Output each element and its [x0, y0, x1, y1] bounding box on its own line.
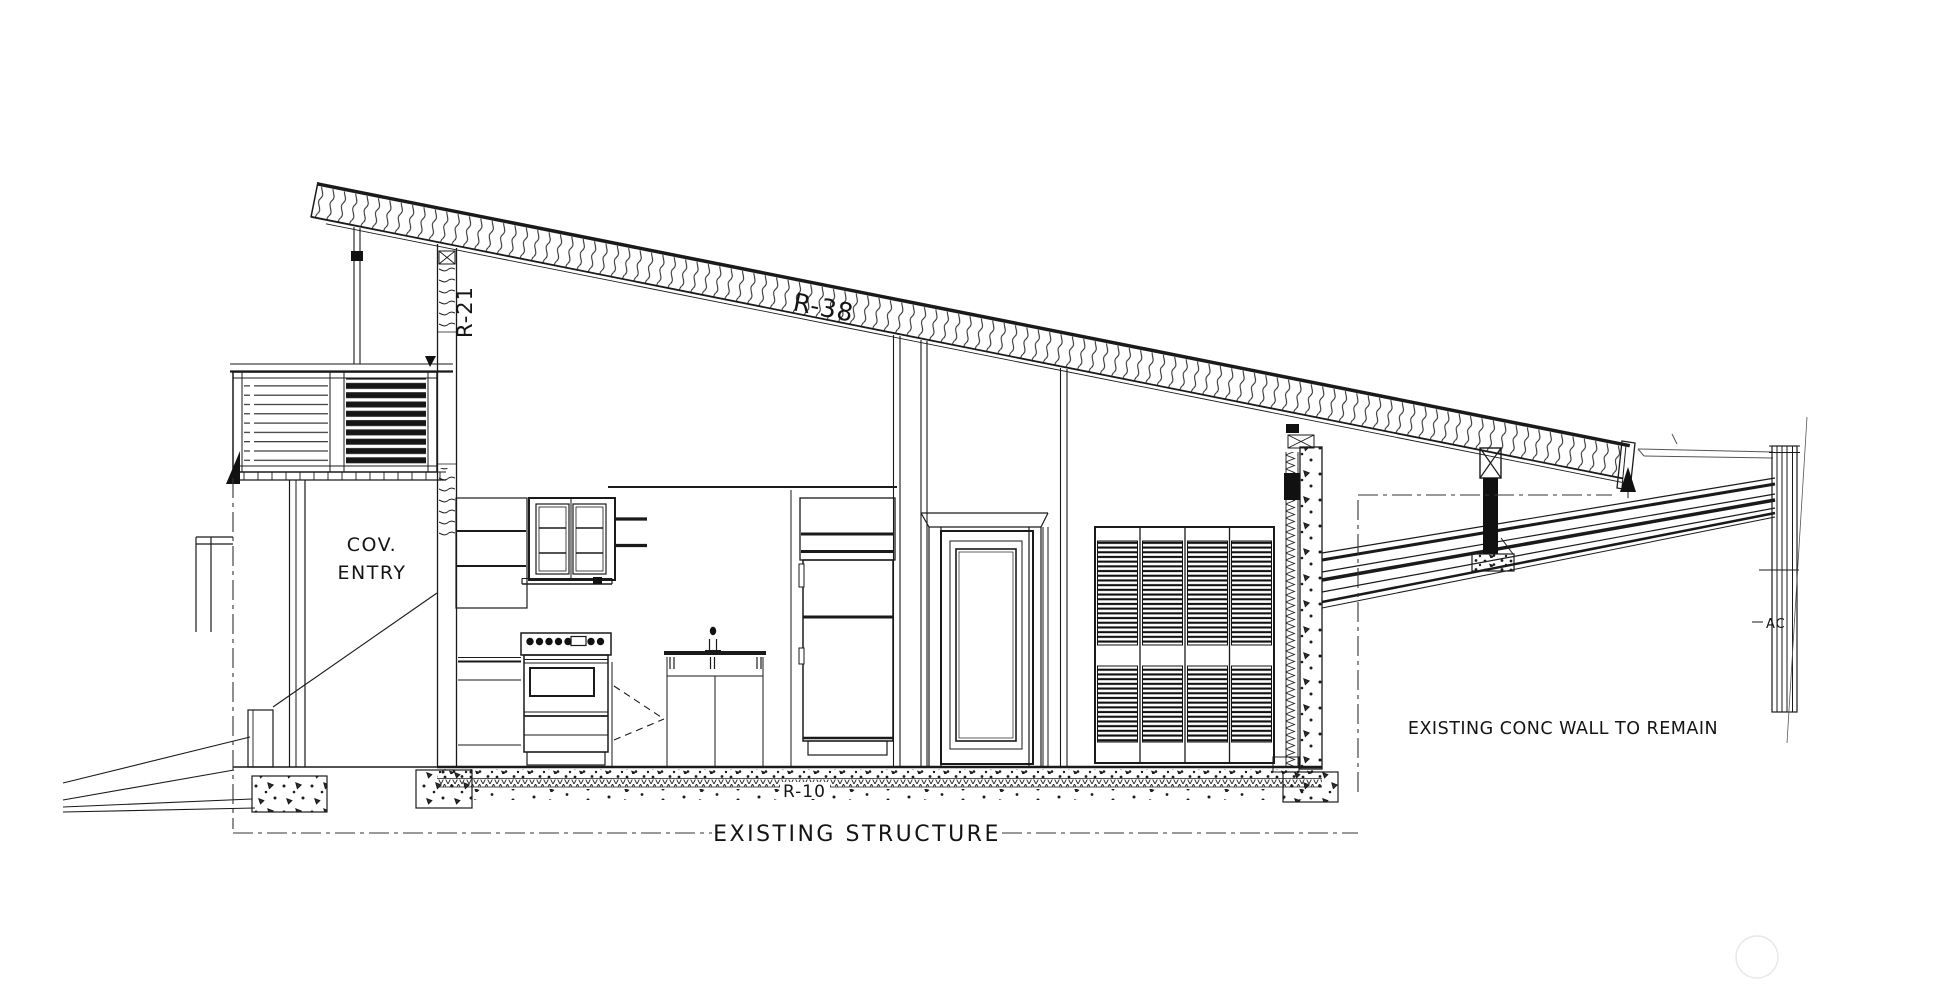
range-oven [521, 633, 611, 765]
label-r10: R-10 [783, 782, 826, 802]
left-footing [416, 770, 472, 808]
label-entry: ENTRY [338, 562, 407, 584]
site-wing-wall [196, 537, 233, 632]
floating-shelves [616, 519, 647, 546]
faint-corner-circle [1736, 936, 1778, 978]
existing-carport-beams [1322, 478, 1775, 608]
louver-sill-ticks [244, 472, 440, 480]
louvered-closet-doors [1095, 527, 1274, 763]
refrigerator [791, 490, 895, 767]
existing-wall-post [1752, 417, 1807, 743]
base-cabinets [458, 658, 521, 746]
building-section-drawing: R-38 R-21 [0, 0, 1940, 989]
concrete-wall-section [1273, 424, 1338, 802]
label-existing-structure: EXISTING STRUCTURE [713, 822, 1001, 847]
porch-post [290, 480, 306, 767]
shed-roof-assembly [310, 182, 1630, 482]
label-covered: COV. [347, 534, 397, 556]
glass-upper-cabinet [529, 498, 615, 580]
label-conc-wall-note: EXISTING CONC WALL TO REMAIN [1408, 719, 1718, 739]
label-r21: R-21 [453, 286, 477, 338]
eave-flashing-board [1638, 434, 1773, 458]
faucet-icon [710, 627, 716, 635]
datum-arrow-porch-roof [425, 356, 436, 367]
kitchen-sink [664, 627, 766, 767]
entry-louver-screen [226, 372, 446, 484]
porch-roof [230, 356, 453, 372]
label-ac: AC [1766, 617, 1786, 632]
porch-footing [252, 776, 327, 812]
grade-slope-lines [63, 737, 255, 812]
open-shelves [456, 498, 527, 608]
dishwasher [612, 657, 667, 767]
paneled-door [921, 513, 1048, 767]
entry-step [248, 593, 437, 767]
drawing-canvas: R-38 R-21 [0, 0, 1940, 989]
roof-outrigger-post [351, 227, 363, 364]
kitchen-casework [456, 487, 897, 608]
slab-on-grade [416, 767, 1322, 808]
